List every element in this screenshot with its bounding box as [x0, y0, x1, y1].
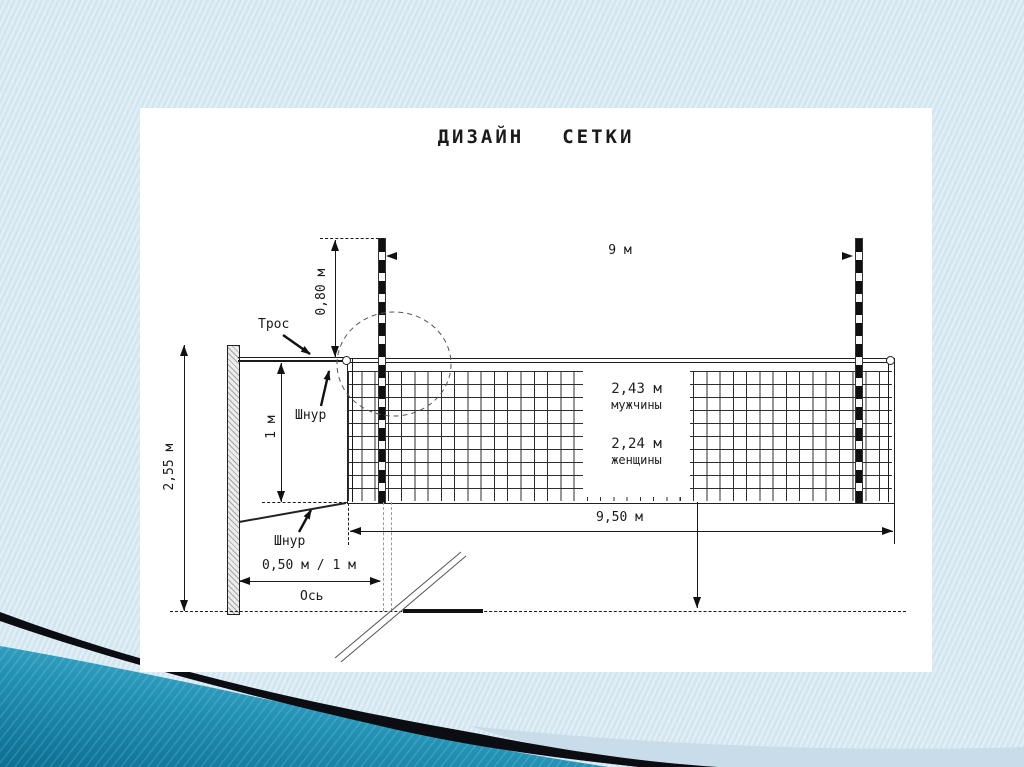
net-band-top-arrowhead	[277, 363, 285, 374]
cord-top-label: Шнур	[295, 409, 326, 423]
net-length-left-extension	[348, 503, 349, 545]
slide: { "slide": { "title_word1": "ДИЗАЙН", "t…	[0, 0, 1024, 767]
post-distance-dim-line	[240, 581, 380, 582]
nine-m-left-arrowhead	[386, 252, 397, 260]
title-word-2: СЕТКИ	[562, 126, 634, 148]
net-band-bottom-arrowhead	[277, 491, 285, 502]
post-distance-right-arrowhead	[370, 577, 381, 585]
post-height-top-arrowhead	[180, 345, 188, 356]
net-height-women-value: 2,24 м	[611, 436, 662, 452]
left-antenna	[378, 238, 386, 504]
net-height-men-caption: мужчины	[611, 398, 662, 412]
slide-title: ДИЗАЙН СЕТКИ	[140, 126, 932, 148]
net-length-label: 9,50 м	[596, 511, 643, 525]
antenna-overhang-bottom-arrowhead	[331, 346, 339, 357]
post-height-bottom-arrowhead	[180, 600, 188, 611]
cable-lower-line	[238, 360, 347, 362]
net-height-women-caption: женщины	[611, 453, 662, 467]
antenna-top-extension-dashed	[320, 238, 384, 239]
net-band-label: 1 м	[265, 412, 279, 442]
net-left-band-line	[352, 358, 353, 502]
net-length-left-arrowhead	[350, 527, 361, 535]
court-width-label: 9 м	[580, 244, 660, 258]
net-band-dim-line	[281, 363, 282, 502]
sideline-projection-dashed-1	[383, 502, 384, 611]
pale-wave	[470, 726, 1024, 767]
post-height-dim-line	[184, 345, 185, 611]
antenna-overhang-top-arrowhead	[331, 240, 339, 251]
cable-upper-line	[238, 357, 347, 358]
antenna-overhang-label: 0,80 м	[315, 266, 329, 318]
net-right-band-line	[888, 358, 889, 502]
cord-bottom-label: Шнур	[274, 535, 305, 549]
net-right-eyelet	[886, 356, 895, 365]
title-word-1: ДИЗАЙН	[438, 126, 525, 148]
cable-label: Трос	[258, 318, 289, 332]
centre-projection-arrowhead	[693, 597, 701, 608]
net-length-dim-line	[350, 531, 893, 532]
net-length-right-arrowhead	[882, 527, 893, 535]
axis-label: Ось	[300, 590, 323, 604]
nine-m-right-arrowhead	[842, 252, 853, 260]
post-height-label: 2,55 м	[163, 437, 177, 497]
net-post	[227, 345, 240, 615]
centre-projection-line	[697, 502, 698, 608]
net-length-right-extension	[894, 504, 895, 544]
post-distance-label: 0,50 м / 1 м	[262, 559, 356, 573]
centre-line-segment	[403, 609, 483, 613]
right-antenna	[855, 238, 863, 504]
antenna-overhang-dim-line	[335, 240, 336, 357]
axis-dashed-line	[170, 611, 906, 612]
net-top-tape-line	[348, 362, 892, 363]
post-distance-left-arrowhead	[239, 577, 250, 585]
net-bottom-extension-dashed	[262, 502, 347, 503]
net-height-label-box: 2,43 м мужчины 2,24 м женщины	[583, 371, 690, 497]
sideline-projection-dashed-2	[391, 502, 392, 611]
net-left-eyelet	[342, 356, 351, 365]
net-height-men-value: 2,43 м	[611, 381, 662, 397]
